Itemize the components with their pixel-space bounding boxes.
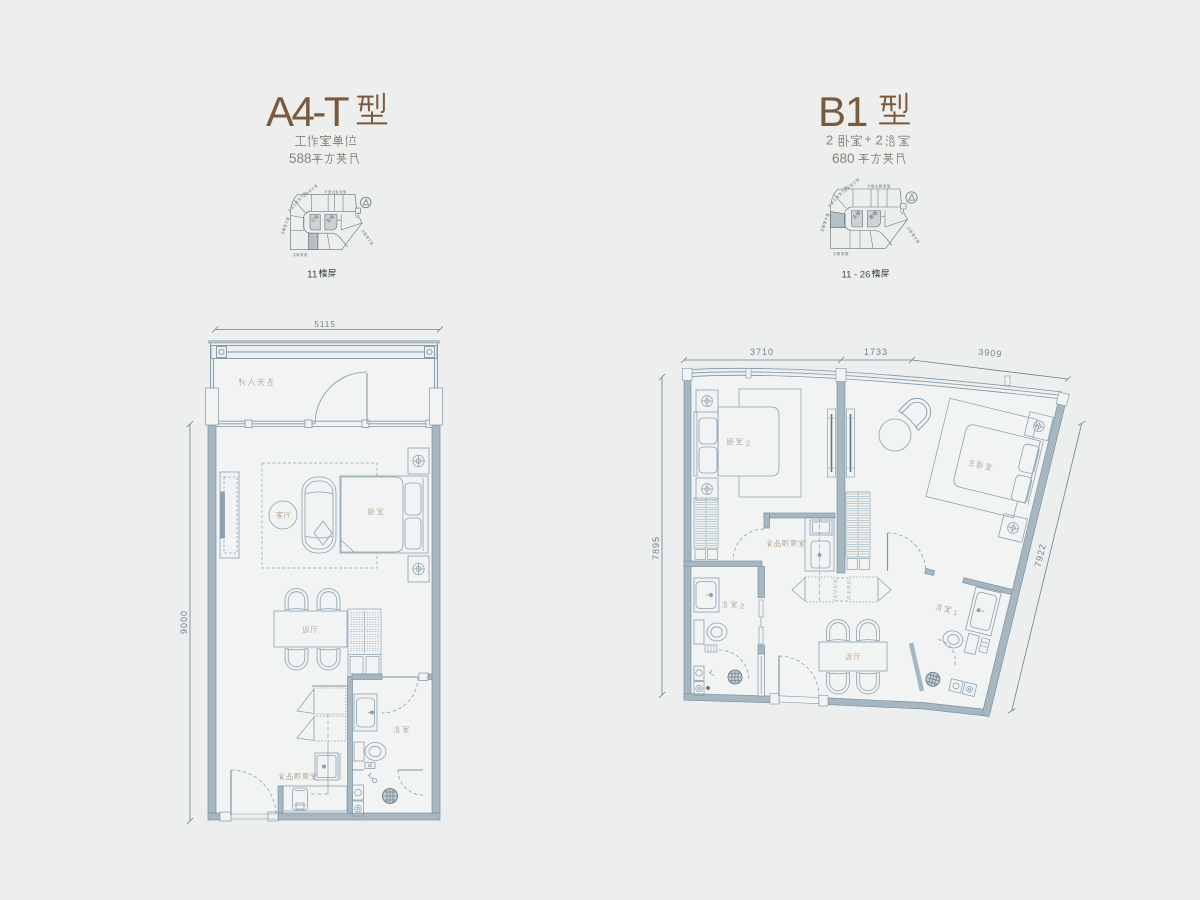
svg-text:588: 588 (289, 151, 312, 166)
svg-text:9000: 9000 (179, 610, 189, 634)
svg-text:B1: B1 (818, 88, 867, 135)
svg-text:7895: 7895 (651, 536, 661, 560)
svg-text:5115: 5115 (314, 319, 335, 329)
svg-text:3710: 3710 (750, 347, 774, 357)
svg-text:2: 2 (740, 602, 744, 611)
svg-text:680: 680 (832, 151, 855, 166)
svg-text:2: 2 (876, 133, 883, 148)
svg-text:+: + (865, 132, 872, 146)
svg-text:11: 11 (307, 270, 318, 281)
svg-text:2: 2 (826, 133, 833, 148)
svg-text:1733: 1733 (864, 347, 888, 357)
svg-text:11 - 26: 11 - 26 (842, 270, 871, 281)
svg-text:A4-T: A4-T (266, 88, 349, 135)
svg-text:2: 2 (746, 439, 750, 448)
